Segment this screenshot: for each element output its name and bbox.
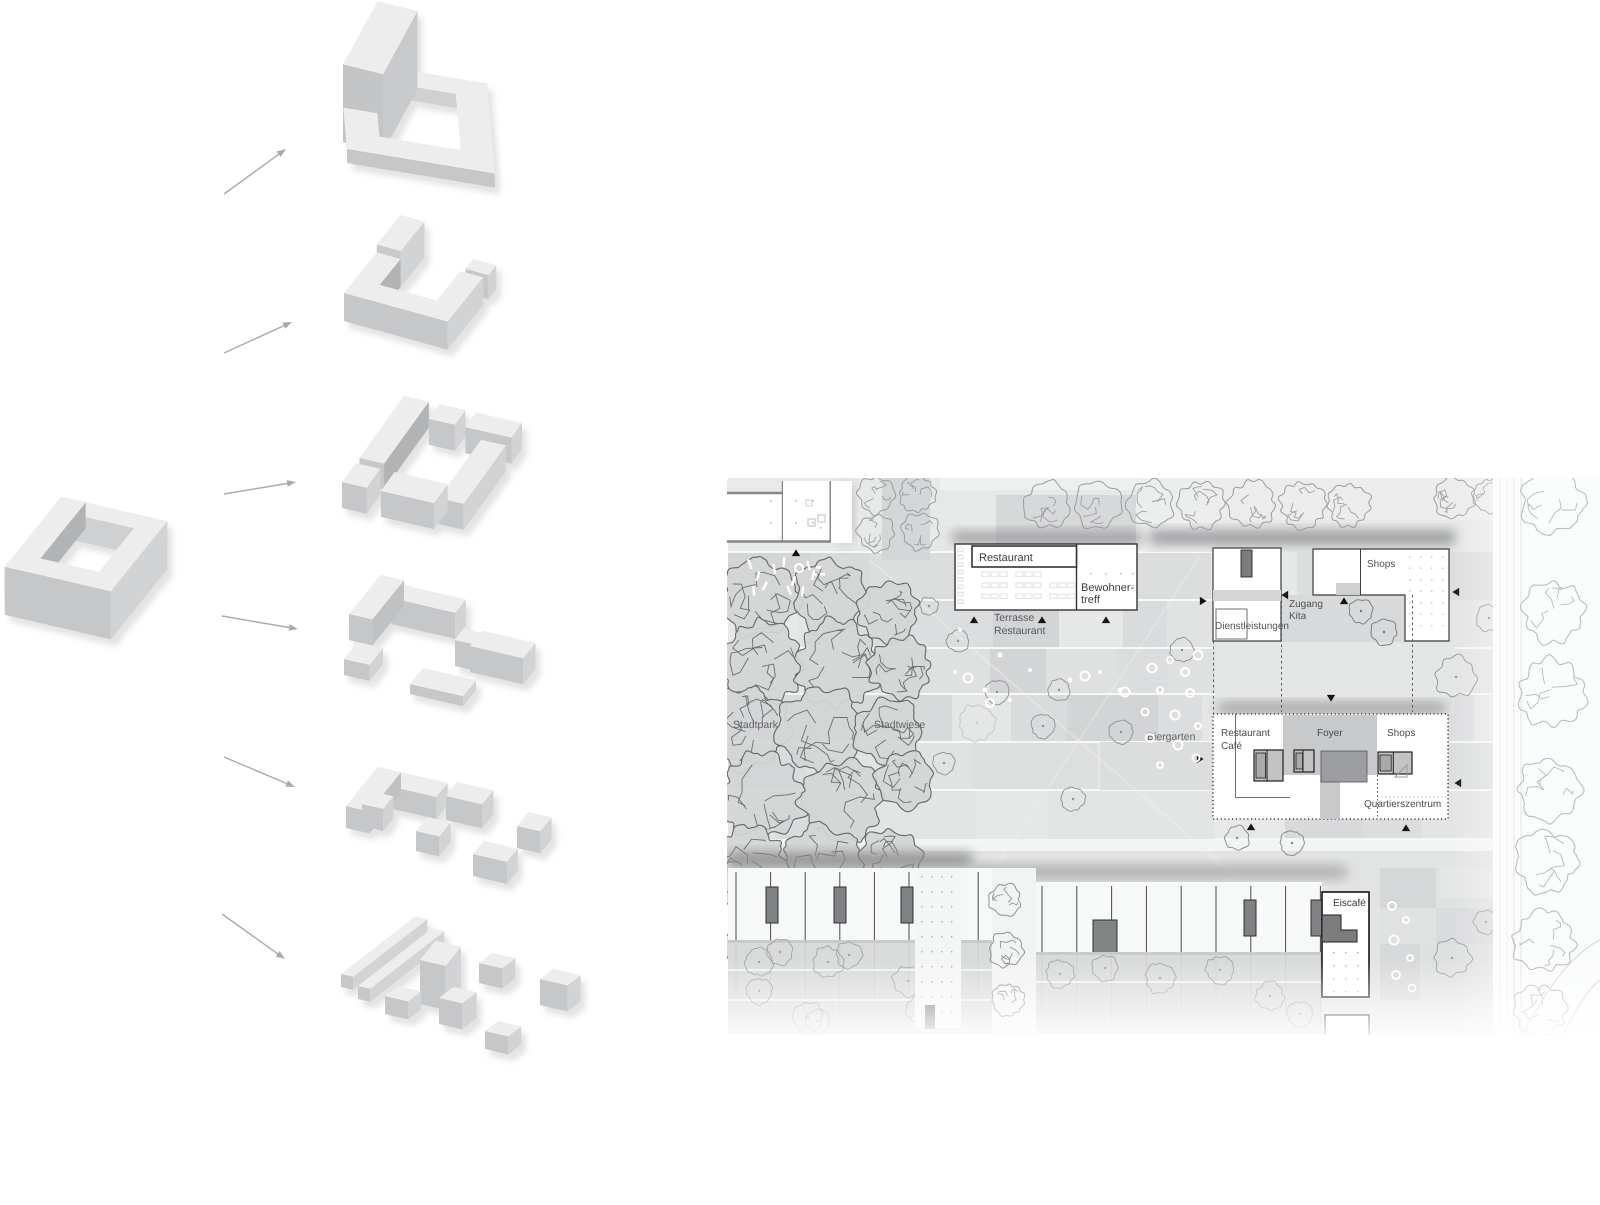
svg-text:Café: Café (1221, 741, 1243, 752)
svg-text:Terrasse: Terrasse (994, 612, 1034, 624)
svg-text:Stadtpark: Stadtpark (733, 719, 779, 731)
svg-text:treff: treff (1081, 594, 1101, 606)
svg-text:Zugang: Zugang (1289, 599, 1323, 610)
svg-text:Shops: Shops (1387, 728, 1415, 739)
svg-text:Dienstleistungen: Dienstleistungen (1215, 621, 1289, 632)
svg-text:Shops: Shops (1367, 559, 1395, 570)
svg-text:Quartierszentrum: Quartierszentrum (1364, 799, 1441, 810)
svg-text:Restaurant: Restaurant (979, 552, 1033, 564)
svg-text:Restaurant: Restaurant (994, 625, 1045, 637)
svg-text:Kita: Kita (1289, 611, 1307, 622)
svg-text:Eiscafé: Eiscafé (1333, 898, 1366, 909)
svg-text:Bewohner-: Bewohner- (1081, 582, 1135, 594)
svg-text:Restaurant: Restaurant (1221, 728, 1270, 739)
svg-text:Stadtwiese: Stadtwiese (874, 719, 926, 731)
svg-text:Foyer: Foyer (1317, 728, 1343, 739)
